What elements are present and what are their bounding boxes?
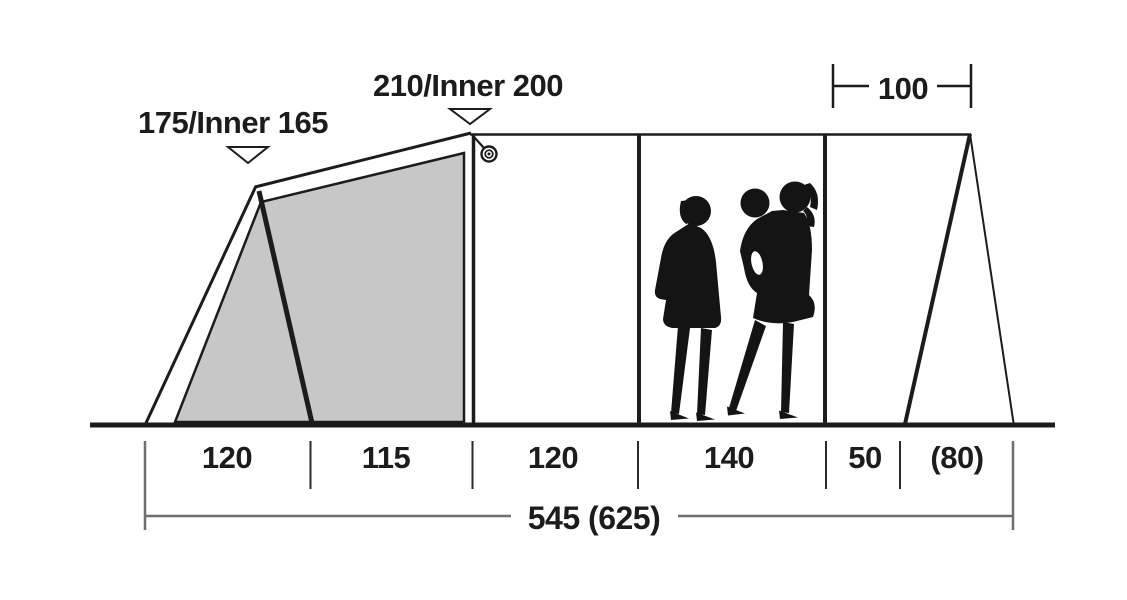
inner-tent-panel: [175, 153, 464, 422]
height-label-main: 210/Inner 200: [373, 68, 563, 103]
diagram-canvas: 175/Inner 165 210/Inner 200 100 120 115 …: [0, 0, 1127, 600]
section-label-3: 120: [528, 440, 578, 475]
tent-dimension-diagram: 175/Inner 165 210/Inner 200 100 120 115 …: [0, 0, 1127, 600]
hanging-ring-icon: [474, 137, 497, 162]
section-label-5: 50: [848, 440, 881, 475]
height-label-front: 175/Inner 165: [138, 105, 328, 140]
section-label-1: 120: [202, 440, 252, 475]
height-arrow-main-icon: [450, 109, 490, 124]
section-label-4: 140: [704, 440, 754, 475]
total-length-dimension: 545 (625): [145, 441, 1013, 536]
top-width-dimension: 100: [833, 64, 971, 108]
people-silhouette: [655, 182, 818, 422]
rear-pole-line: [905, 134, 970, 424]
adult-silhouette-left: [655, 196, 721, 421]
adult-with-child-silhouette: [727, 182, 818, 420]
top-width-label: 100: [878, 71, 928, 106]
section-label-2: 115: [362, 440, 411, 475]
section-label-6: (80): [930, 440, 983, 475]
guy-line: [970, 134, 1014, 426]
tent-structure: [90, 133, 1055, 426]
height-callouts: 175/Inner 165 210/Inner 200: [138, 68, 563, 163]
section-dimensions: 120 115 120 140 50 (80): [202, 440, 984, 489]
height-arrow-front-icon: [228, 147, 268, 163]
total-length-label: 545 (625): [528, 500, 660, 536]
